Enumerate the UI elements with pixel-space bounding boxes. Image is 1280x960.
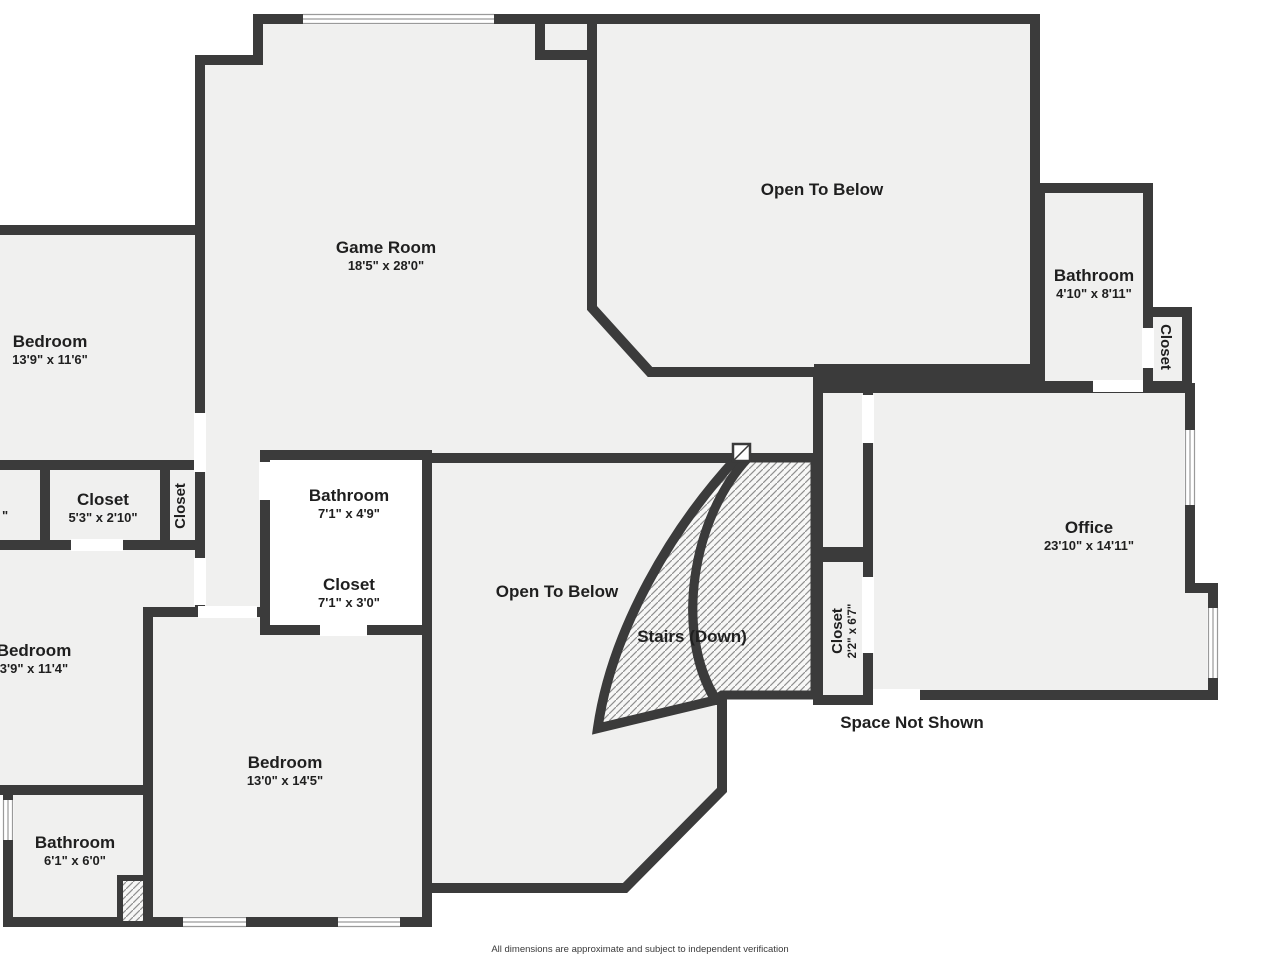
room-title: Closet [172, 483, 189, 529]
room-dims: 13'0" x 14'5" [247, 772, 323, 790]
door-swing-marker [733, 444, 750, 461]
label-space-not-shown: Space Not Shown [812, 713, 1012, 732]
disclaimer-text: All dimensions are approximate and subje… [0, 944, 1280, 955]
room-label-bedroom-top-left: Bedroom 13'9" x 11'6" [0, 332, 150, 369]
cut-dimension-fragment: " [2, 508, 8, 523]
room-dims: 2'2" x 6'7" [846, 604, 860, 659]
room-label-stairs: Stairs (Down) [592, 627, 792, 646]
floorplan-svg [0, 0, 1280, 960]
room-title: Space Not Shown [840, 713, 984, 732]
room-label-bedroom-bottom: Bedroom 13'0" x 14'5" [185, 753, 385, 790]
room-title: Bathroom [1054, 266, 1134, 285]
room-dims: 7'1" x 3'0" [318, 594, 380, 612]
room-title: Bathroom [35, 833, 115, 852]
wall-filler [814, 364, 1044, 392]
room-label-closet-center: Closet 7'1" x 3'0" [249, 575, 449, 612]
room-label-closet-stairs: Closet 2'2" x 6'7" [827, 571, 861, 691]
room-title: Office [1065, 518, 1113, 537]
room-label-closet-left-vertical: Closet [171, 466, 189, 546]
room-label-bathroom-right: Bathroom 4'10" x 8'11" [994, 266, 1194, 303]
room-dims: 23'10" x 14'11" [1044, 537, 1134, 555]
room-dims: 7'1" x 4'9" [318, 505, 380, 523]
room-title: Bedroom [248, 753, 323, 772]
room-dims: 3'9" x 11'4" [0, 660, 68, 678]
room-title: Closet [1158, 324, 1175, 370]
floorplan-page: Game Room 18'5" x 28'0" Open To Below Ba… [0, 0, 1280, 960]
room-dims: 5'3" x 2'10" [68, 509, 137, 527]
room-label-game-room: Game Room 18'5" x 28'0" [286, 238, 486, 275]
room-title: Closet [323, 575, 375, 594]
room-dims: 4'10" x 8'11" [1056, 285, 1132, 303]
hatched-shaft [120, 878, 146, 924]
room-label-open-to-below-center: Open To Below [457, 582, 657, 601]
room-label-open-to-below-top: Open To Below [722, 180, 922, 199]
room-label-office: Office 23'10" x 14'11" [989, 518, 1189, 555]
room-title: Game Room [336, 238, 436, 257]
room-dims: 18'5" x 28'0" [348, 257, 424, 275]
room-title: Bathroom [309, 486, 389, 505]
room-dims: 13'9" x 11'6" [12, 351, 88, 369]
room-label-bathroom-center: Bathroom 7'1" x 4'9" [249, 486, 449, 523]
room-label-bathroom-bottom-left: Bathroom 6'1" x 6'0" [0, 833, 175, 870]
room-title: Bedroom [13, 332, 88, 351]
room-title: Closet [829, 608, 846, 654]
room-title: Bedroom [0, 641, 71, 660]
room-dims: 6'1" x 6'0" [44, 852, 106, 870]
room-label-bedroom-mid-left: Bedroom 3'9" x 11'4" [0, 641, 134, 678]
room-shape-office-alcove [818, 388, 868, 552]
room-label-closet-right-edge: Closet [1157, 302, 1175, 392]
room-title: Closet [77, 490, 129, 509]
room-title: Stairs (Down) [637, 627, 747, 646]
room-title: Open To Below [761, 180, 883, 199]
room-shape-niche [540, 19, 592, 55]
room-title: Open To Below [496, 582, 618, 601]
